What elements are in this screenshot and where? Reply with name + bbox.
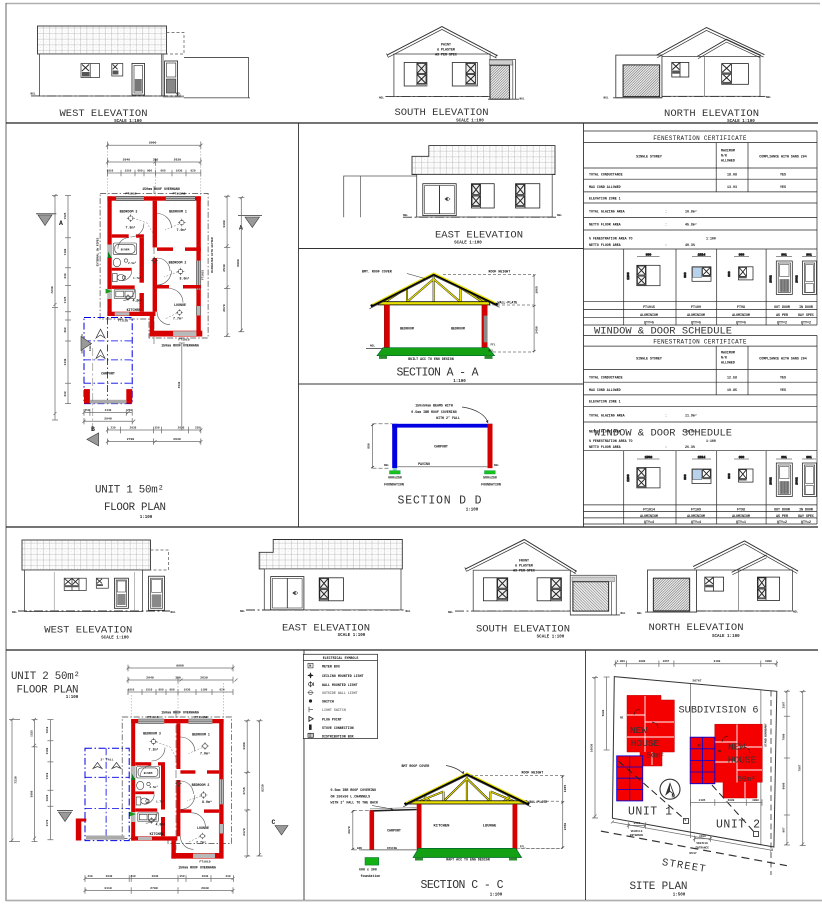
svg-text:0.5mm IBR ROOF COVERING: 0.5mm IBR ROOF COVERING: [331, 788, 377, 792]
svg-text:150mm ROOF OVERHANG: 150mm ROOF OVERHANG: [161, 344, 199, 348]
svg-text:50m²: 50m²: [646, 751, 664, 760]
svg-text:7230: 7230: [14, 776, 18, 784]
svg-text:WITH 2° FALL: WITH 2° FALL: [436, 416, 460, 420]
svg-text:16030: 16030: [591, 743, 594, 752]
svg-text:NGL: NGL: [176, 93, 181, 96]
svg-text:QTY=2: QTY=2: [777, 321, 787, 325]
svg-text:DAY SPEC: DAY SPEC: [798, 514, 814, 518]
svg-text:YES: YES: [780, 388, 786, 392]
svg-text:2° FALL: 2° FALL: [101, 758, 114, 762]
svg-text:9100: 9100: [714, 660, 721, 663]
svg-text:STAND BOUNDARY: STAND BOUNDARY: [765, 723, 768, 747]
svg-text:UNIT 1: UNIT 1: [628, 806, 672, 819]
svg-text:IN DOOR: IN DOOR: [799, 507, 813, 511]
svg-text:TOTAL GLAZING AREA: TOTAL GLAZING AREA: [589, 210, 625, 214]
svg-text:2940: 2940: [123, 158, 131, 162]
svg-text:NGL: NGL: [621, 612, 626, 615]
svg-text:45.8m²: 45.8m²: [685, 223, 697, 227]
svg-text:AS PER: AS PER: [776, 313, 788, 317]
svg-text:2170: 2170: [46, 819, 49, 826]
svg-text:FT1015: FT1015: [125, 192, 136, 196]
svg-text:QTY=5: QTY=5: [736, 321, 746, 325]
svg-text:N/K: N/K: [721, 356, 727, 360]
svg-text:NGL: NGL: [448, 611, 453, 614]
svg-text:SECTION C - C: SECTION C - C: [421, 879, 504, 892]
svg-text:FT109: FT109: [691, 507, 701, 511]
svg-text:KITCHEN: KITCHEN: [150, 832, 164, 836]
svg-text:1010: 1010: [128, 689, 135, 692]
svg-text:2630: 2630: [202, 875, 209, 878]
svg-text:600: 600: [137, 170, 142, 173]
svg-text:7.0m²: 7.0m²: [200, 752, 210, 756]
svg-text:NGL: NGL: [494, 464, 499, 467]
svg-text:CARPORT: CARPORT: [434, 445, 448, 449]
svg-text:867: 867: [783, 827, 786, 832]
svg-text:26767: 26767: [692, 678, 701, 682]
svg-text:NGL: NGL: [370, 345, 375, 348]
svg-text:3190: 3190: [242, 742, 246, 750]
svg-text:7.0m²: 7.0m²: [177, 228, 187, 232]
svg-text:3110: 3110: [104, 886, 112, 890]
svg-text:NORTH ELEVATION: NORTH ELEVATION: [649, 622, 744, 634]
svg-text:3105: 3105: [699, 799, 706, 802]
svg-text:FENESTRATION CERTIFICATE: FENESTRATION CERTIFICATE: [653, 135, 747, 142]
svg-text:7230: 7230: [50, 286, 54, 294]
svg-text:2940: 2940: [106, 875, 113, 878]
svg-text:5000: 5000: [602, 709, 605, 716]
svg-text:OUT DOOR: OUT DOOR: [774, 507, 790, 511]
svg-text:1:100: 1:100: [490, 893, 503, 897]
svg-text:7.2m²: 7.2m²: [149, 748, 159, 752]
svg-text:0.5mm IBR ROOF COVERING: 0.5mm IBR ROOF COVERING: [411, 410, 457, 414]
svg-text:250: 250: [127, 409, 132, 412]
svg-text:801: 801: [806, 253, 812, 257]
svg-text:PAINT: PAINT: [441, 43, 451, 47]
svg-text:SCALE 1:100: SCALE 1:100: [537, 636, 565, 640]
svg-text:2450: 2450: [563, 823, 567, 831]
svg-text:WEST ELEVATION: WEST ELEVATION: [44, 624, 132, 636]
svg-text:2567: 2567: [783, 701, 786, 708]
svg-text:M: M: [309, 665, 311, 669]
svg-text:150mm ROOF OVERHANG: 150mm ROOF OVERHANG: [161, 711, 199, 715]
svg-text:FT98: FT98: [737, 507, 745, 511]
svg-text:2440: 2440: [105, 409, 112, 412]
svg-text:PAVING: PAVING: [387, 847, 397, 850]
svg-text:1:100: 1:100: [66, 696, 79, 700]
svg-text:NGL: NGL: [766, 96, 771, 99]
svg-text:2670: 2670: [222, 304, 226, 312]
svg-text:SCALE 1:100: SCALE 1:100: [101, 636, 129, 640]
svg-text:1514: 1514: [698, 455, 706, 459]
svg-text:8.0m²: 8.0m²: [202, 800, 212, 804]
svg-text:801: 801: [806, 455, 812, 459]
svg-text:TOTAL CONDUCTANCE: TOTAL CONDUCTANCE: [589, 376, 623, 380]
svg-text:26.3%: 26.3%: [685, 445, 695, 449]
svg-text:7.5m²: 7.5m²: [126, 226, 136, 230]
svg-text:CARPORT: CARPORT: [387, 829, 401, 833]
svg-text:11.9m²: 11.9m²: [685, 414, 697, 418]
svg-text:6000: 6000: [765, 660, 772, 663]
svg-text:NORTH ELEVATION: NORTH ELEVATION: [664, 108, 759, 120]
svg-text:VEHICLE: VEHICLE: [631, 830, 643, 833]
svg-text:2630: 2630: [130, 426, 137, 429]
svg-text:FT1015: FT1015: [199, 860, 210, 864]
svg-text:UNIT 1 50m²: UNIT 1 50m²: [95, 485, 164, 497]
svg-text:900: 900: [646, 253, 652, 257]
svg-text:1:100: 1:100: [706, 237, 716, 241]
svg-text:BEDROOM 3: BEDROOM 3: [143, 732, 161, 736]
svg-text:350: 350: [179, 875, 184, 878]
svg-text:LOUNGE: LOUNGE: [197, 826, 209, 830]
svg-text:7867: 7867: [798, 764, 801, 771]
svg-text:1200: 1200: [626, 474, 630, 482]
svg-text:250: 250: [84, 409, 89, 412]
svg-text:FENESTRATION CERTIFICATE: FENESTRATION CERTIFICATE: [653, 339, 747, 346]
svg-text:10.85: 10.85: [727, 388, 737, 392]
svg-text:FT1015: FT1015: [178, 338, 189, 342]
svg-text:900: 900: [739, 253, 745, 257]
svg-text:NETTO FLOOR AREA: NETTO FLOOR AREA: [589, 445, 621, 449]
svg-text::: :: [665, 210, 667, 214]
svg-text:2940: 2940: [104, 417, 112, 421]
svg-text:801: 801: [781, 455, 787, 459]
svg-text:FT1014: FT1014: [643, 507, 655, 511]
svg-text:1525: 1525: [64, 212, 67, 219]
svg-text:1100: 1100: [201, 689, 208, 692]
svg-text:ALUMINIUM: ALUMINIUM: [687, 514, 705, 518]
svg-text:600x250: 600x250: [388, 476, 402, 480]
svg-text::: :: [665, 243, 667, 247]
svg-text:IN DOOR: IN DOOR: [799, 305, 813, 309]
svg-text:10.8m²: 10.8m²: [685, 210, 697, 214]
svg-text:COMPLIANCE WITH SANS 204: COMPLIANCE WITH SANS 204: [759, 357, 807, 361]
svg-text:NGL: NGL: [406, 610, 411, 613]
svg-text:1930: 1930: [176, 170, 183, 173]
svg-text:HOUSE: HOUSE: [728, 755, 757, 766]
svg-text:8.0m²: 8.0m²: [180, 277, 190, 281]
svg-text:KITCHEN: KITCHEN: [127, 308, 141, 312]
svg-text:900: 900: [727, 271, 731, 277]
svg-text:QTY=1: QTY=1: [736, 520, 746, 524]
svg-text:DISTRIBUTION BOX: DISTRIBUTION BOX: [322, 734, 354, 738]
svg-text:SCALE 1:100: SCALE 1:100: [727, 120, 755, 124]
svg-text:18.08: 18.08: [727, 173, 737, 177]
svg-text:A: A: [59, 220, 63, 227]
svg-text:EAST ELEVATION: EAST ELEVATION: [282, 622, 370, 634]
svg-text:1.000: 1.000: [616, 660, 625, 663]
svg-text:N/K: N/K: [721, 154, 727, 158]
svg-text:2.5m²: 2.5m²: [128, 261, 137, 265]
svg-text:1010: 1010: [46, 726, 49, 733]
svg-text:NETTO FLOOR AREA: NETTO FLOOR AREA: [589, 243, 621, 247]
svg-text:YES: YES: [780, 185, 786, 189]
svg-text:ROOF HEIGHT: ROOF HEIGHT: [489, 270, 511, 274]
svg-text:MAX COND ALLOWED: MAX COND ALLOWED: [589, 388, 621, 392]
svg-text:3190: 3190: [222, 220, 226, 228]
svg-text:9000: 9000: [783, 782, 786, 789]
svg-text:& PLASTER: & PLASTER: [437, 48, 455, 52]
svg-text:UNIT 2: UNIT 2: [716, 819, 760, 832]
svg-text:EXTERNAL SW PIPES: EXTERNAL SW PIPES: [97, 237, 100, 266]
svg-text:WINDOW & DOOR SCHEDULE: WINDOW & DOOR SCHEDULE: [594, 428, 732, 440]
svg-text:3667: 3667: [663, 660, 670, 663]
svg-text:STOVE CONNECTION: STOVE CONNECTION: [322, 726, 354, 730]
svg-text:BATHRM: BATHRM: [144, 772, 153, 775]
svg-text:3190: 3190: [46, 747, 49, 754]
svg-text:RE: RE: [620, 717, 624, 720]
svg-text:1410: 1410: [46, 772, 49, 779]
svg-text:ALLOWED: ALLOWED: [721, 361, 735, 365]
svg-text:900: 900: [169, 689, 174, 692]
svg-text:CEILING MOUNTED LIGHT: CEILING MOUNTED LIGHT: [322, 674, 364, 678]
svg-text:SECTION A - A: SECTION A - A: [397, 367, 479, 380]
svg-text:VEHICLE: VEHICLE: [696, 842, 708, 845]
svg-text:MAX COND ALLOWED: MAX COND ALLOWED: [589, 185, 621, 189]
svg-text:1510: 1510: [125, 170, 132, 173]
svg-text:1125: 1125: [64, 296, 67, 303]
svg-text:SECTION D D: SECTION D D: [398, 495, 482, 508]
svg-text:950: 950: [367, 443, 371, 449]
svg-text:1010: 1010: [107, 170, 114, 173]
svg-text:N: N: [672, 793, 675, 800]
svg-text:2630: 2630: [174, 158, 182, 162]
svg-text:900: 900: [739, 455, 745, 459]
svg-text::: :: [665, 223, 667, 227]
svg-text:FLOOR PLAN: FLOOR PLAN: [17, 685, 79, 697]
svg-text:FRONT: FRONT: [519, 559, 529, 563]
svg-text:2940: 2940: [146, 676, 154, 680]
svg-text:FOUNDATION: FOUNDATION: [384, 483, 404, 487]
svg-text:801: 801: [781, 253, 787, 257]
svg-text:4716: 4716: [242, 787, 246, 795]
svg-text:WALL MOUNTED LIGHT: WALL MOUNTED LIGHT: [322, 683, 358, 687]
svg-text:AS PER SPEC: AS PER SPEC: [513, 569, 535, 573]
svg-text:% FENESTRATION AREA TO: % FENESTRATION AREA TO: [589, 237, 633, 241]
svg-text:SOUTH ELEVATION: SOUTH ELEVATION: [476, 623, 570, 635]
svg-text:EAST ELEVATION: EAST ELEVATION: [435, 230, 523, 242]
svg-text:1:100: 1:100: [453, 380, 466, 384]
svg-text:900: 900: [683, 474, 687, 480]
svg-text:ALUMINIUM: ALUMINIUM: [732, 313, 750, 317]
svg-text:FT113AB: FT113AB: [195, 715, 208, 719]
svg-text:QTY=5: QTY=5: [691, 321, 701, 325]
svg-text:MAXIMUM: MAXIMUM: [721, 149, 735, 153]
svg-text:NGL: NGL: [793, 611, 798, 614]
svg-text:RAFT ACC TO ENG DESIGN: RAFT ACC TO ENG DESIGN: [446, 858, 490, 862]
svg-text:2032: 2032: [795, 477, 799, 485]
svg-text:1510: 1510: [146, 689, 153, 692]
svg-text:RE: RE: [718, 750, 722, 753]
svg-text:FT1015: FT1015: [643, 305, 655, 309]
svg-text:NETTO FLOOR AREA: NETTO FLOOR AREA: [589, 223, 621, 227]
svg-text:NGL: NGL: [171, 611, 176, 614]
svg-text:NEW: NEW: [728, 742, 745, 753]
svg-text:BUILT ACC TO ENG DESIGN: BUILT ACC TO ENG DESIGN: [408, 357, 454, 361]
svg-text:40.3%: 40.3%: [685, 243, 695, 247]
svg-text:7.7m²: 7.7m²: [173, 317, 183, 321]
svg-text:2450: 2450: [535, 326, 539, 334]
svg-text:OUT DOOR: OUT DOOR: [774, 305, 790, 309]
svg-text:1:100: 1:100: [466, 508, 479, 512]
svg-text:350: 350: [153, 158, 159, 162]
svg-text:BMT ROOF COVER: BMT ROOF COVER: [402, 764, 430, 768]
svg-text:3000: 3000: [639, 660, 646, 663]
svg-text:COMPLIANCE WITH SANS 204: COMPLIANCE WITH SANS 204: [759, 155, 807, 159]
svg-text:ELEVATION ZONE 1: ELEVATION ZONE 1: [589, 196, 621, 200]
svg-text:2630: 2630: [178, 426, 185, 429]
svg-text:FLOOR PLAN: FLOOR PLAN: [104, 502, 166, 514]
svg-text:SOUTH ELEVATION: SOUTH ELEVATION: [395, 107, 489, 119]
svg-text:900: 900: [727, 473, 731, 479]
svg-text:NEW: NEW: [630, 725, 647, 736]
svg-text:150mm ROOF OVERHANG: 150mm ROOF OVERHANG: [142, 187, 180, 191]
svg-text:KITCHEN: KITCHEN: [434, 825, 451, 829]
svg-text:UNIT 2 50m²: UNIT 2 50m²: [11, 671, 80, 683]
svg-text:350: 350: [175, 676, 181, 680]
svg-text:2930: 2930: [173, 437, 181, 441]
svg-text:OUTSIDE WALL LIGHT: OUTSIDE WALL LIGHT: [322, 691, 358, 695]
svg-text:150mm ROOF OVERHANG: 150mm ROOF OVERHANG: [178, 865, 216, 869]
svg-text:ALLOWED: ALLOWED: [721, 159, 735, 163]
svg-text:ALUMINIUM: ALUMINIUM: [732, 514, 750, 518]
svg-text:2032: 2032: [795, 275, 799, 283]
svg-text:ALUMINIUM: ALUMINIUM: [640, 514, 658, 518]
svg-text:4.0m²: 4.0m²: [133, 299, 143, 303]
svg-text:8230: 8230: [260, 784, 264, 792]
svg-text:500x250: 500x250: [483, 476, 497, 480]
svg-text:NGL: NGL: [403, 214, 408, 217]
svg-text:2630: 2630: [200, 676, 208, 680]
svg-text:AS PER SPEC: AS PER SPEC: [435, 53, 457, 57]
svg-text:2032: 2032: [769, 477, 773, 485]
svg-text:FT113B: FT113B: [118, 320, 128, 323]
svg-text::: :: [665, 445, 667, 449]
svg-text:2630: 2630: [152, 875, 159, 878]
svg-text:BEDROOM 1: BEDROOM 1: [192, 733, 210, 737]
svg-text:1065: 1065: [563, 785, 567, 793]
svg-text:ON 150x50 L.CHANNELS: ON 150x50 L.CHANNELS: [331, 794, 371, 798]
svg-text:FT109: FT109: [691, 305, 701, 309]
svg-text:1:500: 1:500: [673, 893, 686, 897]
svg-text:ROOF HEIGHT: ROOF HEIGHT: [522, 770, 544, 774]
svg-text:NGL: NGL: [489, 350, 494, 353]
svg-text:GRD: GRD: [357, 847, 362, 850]
svg-text:600: 600: [160, 170, 165, 173]
svg-text:1:100: 1:100: [140, 516, 153, 520]
svg-text:HOUSE: HOUSE: [631, 738, 660, 749]
svg-text:680: 680: [64, 327, 67, 332]
svg-text:FT113AB: FT113AB: [173, 192, 186, 196]
svg-text:230: 230: [87, 875, 92, 878]
svg-text:FT1015: FT1015: [147, 715, 158, 719]
svg-text:150x50mm BEAMS WITH: 150x50mm BEAMS WITH: [415, 404, 453, 408]
svg-text:RE: RE: [698, 745, 702, 748]
svg-text:230: 230: [130, 875, 135, 878]
svg-text:RAINWATER WITH GEYSER: RAINWATER WITH GEYSER: [211, 237, 214, 273]
svg-text:2.5m²: 2.5m²: [150, 785, 159, 789]
svg-text:SINGLE STOREY: SINGLE STOREY: [636, 155, 662, 159]
svg-text:NGL: NGL: [604, 97, 609, 100]
svg-text:50m²: 50m²: [737, 775, 755, 784]
svg-text:6890: 6890: [236, 259, 240, 267]
svg-text:FFL.: FFL.: [520, 845, 527, 848]
svg-text:QTY=5: QTY=5: [644, 321, 654, 325]
svg-text:1620: 1620: [46, 794, 49, 801]
svg-text:QTY=2: QTY=2: [801, 321, 811, 325]
svg-text:QTY=4: QTY=4: [644, 520, 654, 524]
svg-text:PAVING: PAVING: [418, 462, 430, 466]
svg-text:SCALE 1:100: SCALE 1:100: [456, 120, 484, 124]
svg-text:QTY=2: QTY=2: [777, 520, 787, 524]
svg-text:900: 900: [683, 272, 687, 278]
svg-text:SWITCH: SWITCH: [322, 700, 334, 704]
svg-text:BEDROOM 1: BEDROOM 1: [169, 210, 187, 214]
svg-text:7.7m²: 7.7m²: [196, 841, 206, 845]
svg-text:2070: 2070: [347, 826, 351, 834]
svg-text:1508: 1508: [645, 455, 653, 459]
svg-text:SCALE 1:100: SCALE 1:100: [338, 634, 366, 638]
svg-text:FT98: FT98: [737, 305, 745, 309]
svg-text:PLUG POINT: PLUG POINT: [322, 718, 342, 722]
svg-text:SITE PLAN: SITE PLAN: [630, 881, 688, 893]
svg-text:2930: 2930: [201, 886, 209, 890]
svg-text:BEDROOM 2: BEDROOM 2: [192, 783, 210, 787]
svg-text:CARPORT: CARPORT: [101, 372, 115, 376]
svg-text:NGL: NGL: [12, 611, 17, 614]
svg-text:5980: 5980: [30, 790, 33, 797]
svg-text:ELECTRICAL SYMBOLS: ELECTRICAL SYMBOLS: [323, 656, 359, 660]
svg-text::: :: [665, 414, 667, 418]
svg-text:1930: 1930: [184, 689, 191, 692]
svg-text:WITH 2° FALL TO THE BACK: WITH 2° FALL TO THE BACK: [331, 801, 379, 805]
svg-text:BEDROOM: BEDROOM: [400, 327, 414, 331]
svg-text:% FENESTRATION AREA TO: % FENESTRATION AREA TO: [589, 439, 633, 443]
svg-text:2440: 2440: [64, 358, 67, 365]
svg-text:2700: 2700: [127, 437, 135, 441]
svg-text:9547: 9547: [689, 851, 697, 855]
svg-text:4530: 4530: [178, 381, 181, 388]
svg-text:620: 620: [190, 170, 195, 173]
svg-text:SCALE 1:100: SCALE 1:100: [712, 635, 740, 639]
svg-text:YES: YES: [780, 173, 786, 177]
svg-text:BEDROOM 2: BEDROOM 2: [169, 261, 187, 265]
svg-text:QTY=2: QTY=2: [801, 520, 811, 524]
svg-text:BMT. ROOF COVER: BMT. ROOF COVER: [362, 270, 392, 274]
svg-text:13.93: 13.93: [727, 185, 737, 189]
svg-text:7000: 7000: [783, 733, 786, 740]
svg-text:8900: 8900: [176, 663, 184, 667]
svg-text:230: 230: [225, 875, 230, 878]
svg-text:WALL-PLATE: WALL-PLATE: [528, 800, 548, 804]
svg-text:NGL: NGL: [379, 96, 384, 99]
svg-text:WALL-PLATE: WALL-PLATE: [498, 300, 518, 304]
svg-text:600: 600: [158, 689, 163, 692]
svg-text:620: 620: [219, 689, 224, 692]
svg-text:1525: 1525: [30, 730, 33, 737]
svg-text:LOUNGE: LOUNGE: [483, 825, 497, 829]
svg-text:1065: 1065: [535, 286, 539, 294]
svg-text:230: 230: [195, 426, 200, 429]
svg-text:1514: 1514: [698, 253, 706, 257]
svg-text:8900: 8900: [149, 141, 157, 145]
svg-text:TOTAL GLAZING AREA: TOTAL GLAZING AREA: [589, 414, 625, 418]
svg-text:1:100: 1:100: [706, 439, 716, 443]
svg-text:ALUMINIUM: ALUMINIUM: [640, 313, 658, 317]
svg-text:1100: 1100: [64, 248, 67, 255]
svg-text:NGL: NGL: [520, 98, 525, 101]
svg-text:600 x 300: 600 x 300: [359, 868, 377, 872]
svg-text:BEDROOM 3: BEDROOM 3: [120, 210, 138, 214]
